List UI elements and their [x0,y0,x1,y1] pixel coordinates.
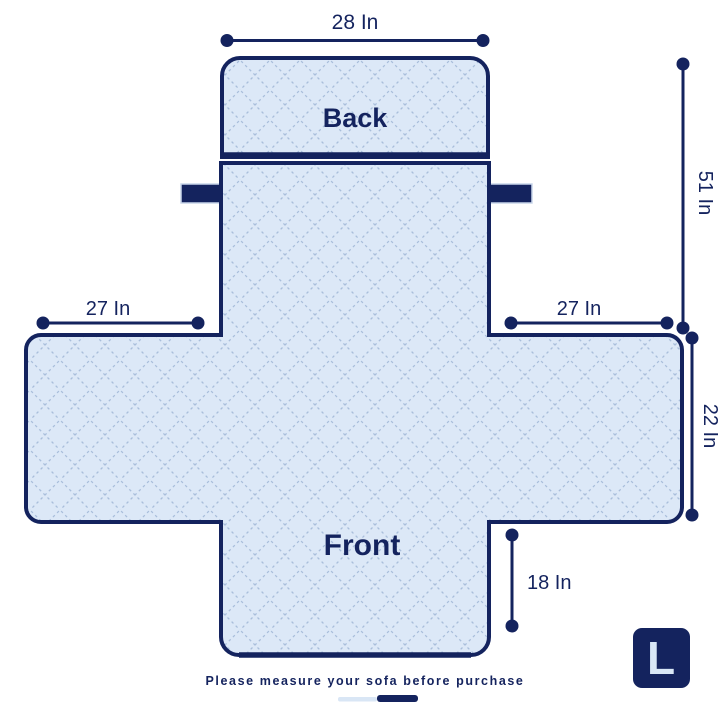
front-panel-label: Front [324,529,401,562]
carousel-indicators [338,695,418,702]
measure-dot [677,322,690,335]
measure-dot [686,509,699,522]
measure-dot [221,34,234,47]
measure-dot [677,58,690,71]
measurement-arm-depth [686,332,699,522]
size-badge-letter: L [647,632,675,684]
size-badge: L [633,628,690,688]
left-strap [181,184,223,203]
measurement-right-arm-label: 27 In [557,298,601,320]
measurement-front-skirt-label: 18 In [527,572,571,594]
measure-dot [505,317,518,330]
measure-dot [661,317,674,330]
measure-dot [686,332,699,345]
measurement-side-height [677,58,690,335]
measurement-left-arm-label: 27 In [86,298,130,320]
diagram-canvas: Back Front 28 In 51 In 27 In 27 [0,0,720,720]
right-strap [488,184,532,203]
measure-dot [506,620,519,633]
indicator-bar-inactive [338,697,377,702]
sofa-cover-size-diagram: Back Front 28 In 51 In 27 In 27 [0,0,720,720]
measure-dot [192,317,205,330]
measure-dot [37,317,50,330]
footer-note: Please measure your sofa before purchase [206,674,525,688]
measurement-front-skirt [506,529,519,633]
measure-dot [477,34,490,47]
cover-body-panel [26,163,682,655]
measure-dot [506,529,519,542]
measurement-top-width-label: 28 In [332,11,379,34]
measurement-top-width [221,34,490,47]
back-panel-label: Back [323,103,389,133]
measurement-side-height-label: 51 In [694,171,716,215]
indicator-bar-active [377,695,418,702]
measurement-arm-depth-label: 22 In [699,404,720,448]
